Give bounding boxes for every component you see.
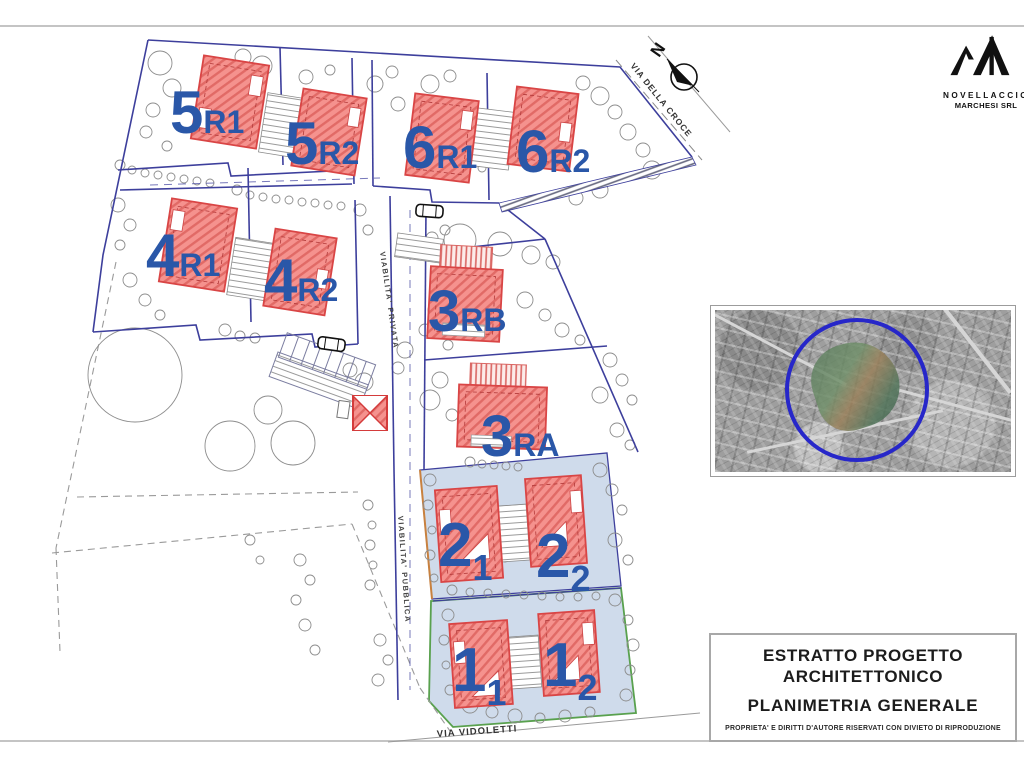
street-label-viabilita-pubblica: VIABILITA' PUBBLICA bbox=[396, 516, 412, 624]
title-line3: PLANIMETRIA GENERALE bbox=[711, 696, 1015, 716]
street-label-via-vidoletti: VIA VIDOLETTI bbox=[436, 723, 517, 740]
title-block: ESTRATTO PROGETTO ARCHITETTONICO PLANIME… bbox=[709, 633, 1017, 742]
via-della-croce-road bbox=[616, 36, 730, 160]
title-disclaimer: PROPRIETA' E DIRITTI D'AUTORE RISERVATI … bbox=[711, 725, 1015, 732]
brand-subname: MARCHESI SRL bbox=[938, 101, 1024, 110]
cabin-symbol bbox=[337, 396, 387, 430]
site-circle-marker bbox=[785, 318, 929, 462]
drawing-sheet: 5R1 5R2 6R1 6R2 4R1 4R2 3RB 3RA 21 22 11… bbox=[0, 0, 1024, 768]
satellite-inset bbox=[710, 305, 1016, 477]
street-label-viabilita-privata: VIABILITA' PRIVATA bbox=[378, 251, 401, 350]
title-line1: ESTRATTO PROGETTO bbox=[711, 646, 1015, 667]
brand-name: NOVELLACCIO bbox=[938, 91, 1024, 100]
company-logo: NOVELLACCIO MARCHESI SRL bbox=[938, 28, 1024, 110]
title-line2: ARCHITETTONICO bbox=[711, 667, 1015, 688]
mountain-logo-icon bbox=[947, 28, 1024, 84]
street-label-via-della-croce: VIA DELLA CROCE bbox=[628, 61, 694, 139]
aerial-photo bbox=[715, 310, 1011, 472]
